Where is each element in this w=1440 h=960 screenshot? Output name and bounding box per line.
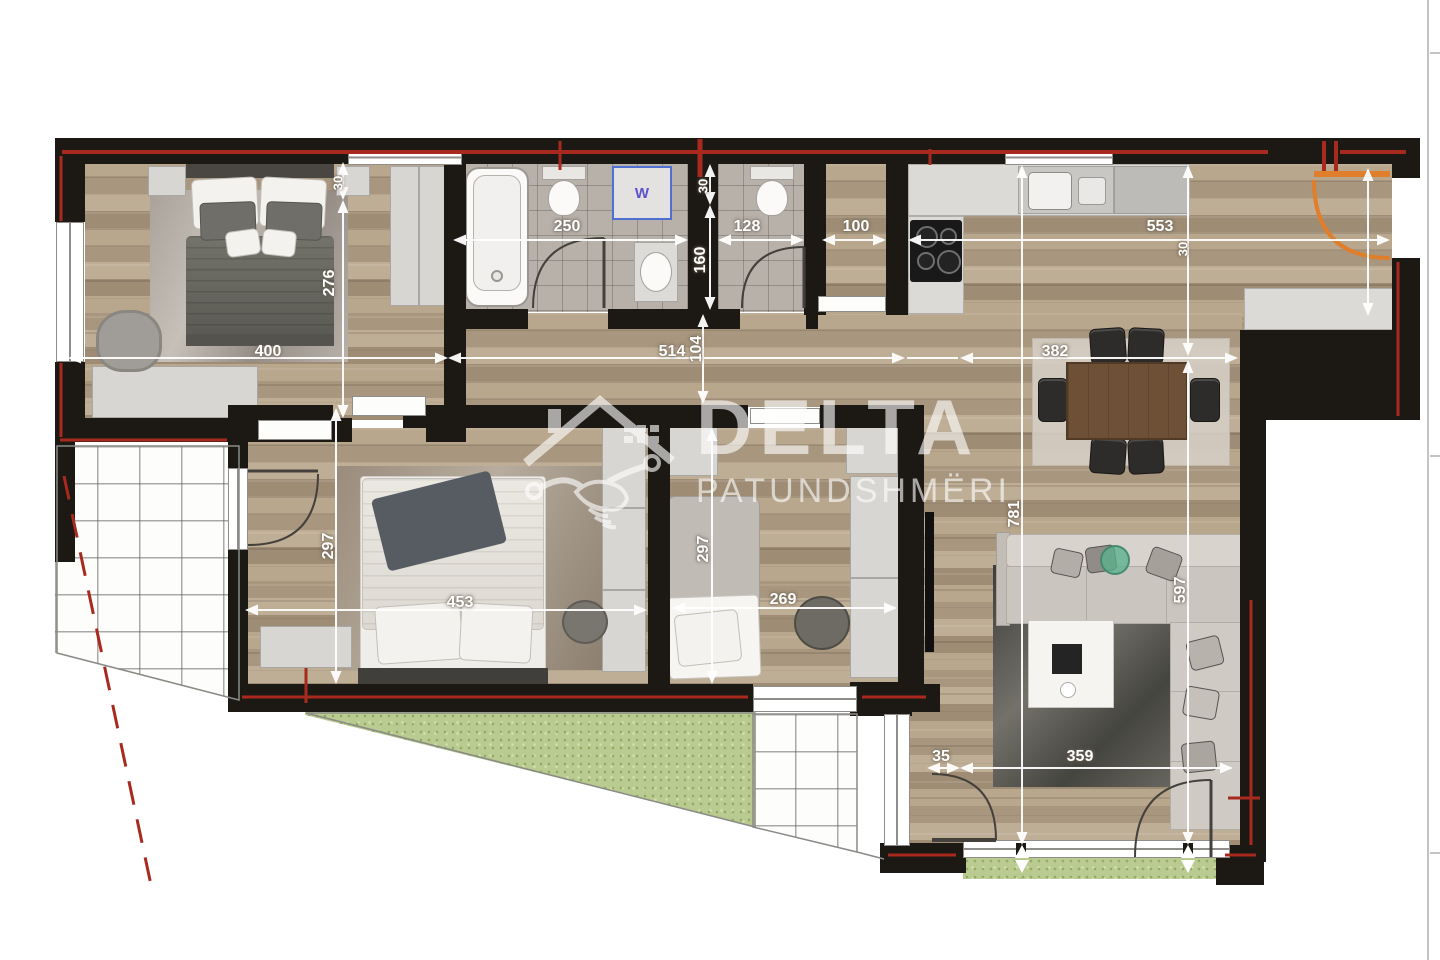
window xyxy=(1005,150,1113,165)
wall xyxy=(1240,420,1266,862)
dim-label-living-height: 781 xyxy=(1006,501,1024,528)
door-leaf xyxy=(818,296,886,312)
wall xyxy=(55,442,75,562)
tv-wall-unit xyxy=(925,512,934,652)
dim-label-terrace-door-offset: 35 xyxy=(932,748,950,766)
cooktop-burner xyxy=(937,250,961,274)
floor-hallway xyxy=(818,164,888,314)
dim-label-kitchen-width: 553 xyxy=(1147,218,1174,236)
dim-label-bath-wall-offset: 30 xyxy=(696,179,711,193)
wall xyxy=(850,682,912,716)
dim-label-bedroom3-width: 269 xyxy=(770,591,797,609)
toilet-bowl xyxy=(548,180,580,216)
garden-grass-triangle xyxy=(305,712,755,828)
bed-cushion xyxy=(261,228,298,257)
wall xyxy=(886,160,908,315)
dim-label-bedroom1-width: 400 xyxy=(255,343,282,361)
desk-chair xyxy=(794,596,850,650)
bench xyxy=(260,626,352,668)
dining-chair xyxy=(1038,378,1068,422)
floor-plan: W xyxy=(0,0,1440,960)
toilet-tank xyxy=(542,166,586,180)
dining-chair xyxy=(1127,327,1165,365)
wall xyxy=(403,405,748,428)
wall xyxy=(228,550,248,686)
wall xyxy=(820,405,924,428)
sheet-tick xyxy=(1430,455,1440,457)
sheet-tick xyxy=(1430,852,1440,854)
nightstand xyxy=(148,166,186,196)
dim-label-bedroom2-width: 453 xyxy=(447,594,474,612)
desk xyxy=(850,476,900,678)
sheet-border-line xyxy=(1427,0,1429,960)
window xyxy=(56,222,84,362)
dining-chair xyxy=(1127,437,1165,475)
wall xyxy=(806,309,818,329)
wall xyxy=(228,428,248,468)
wall xyxy=(608,309,740,329)
bed-pillow xyxy=(673,609,742,667)
dim-label-kitchen-offset: 30 xyxy=(1176,242,1191,256)
terrace-paving-left xyxy=(55,446,239,714)
sheet-tick xyxy=(1430,52,1440,54)
glass-door-mullion xyxy=(1183,843,1193,855)
wall xyxy=(448,309,528,329)
pouf xyxy=(562,600,608,644)
terrace-paving-small xyxy=(753,714,857,854)
coffee-table-tray xyxy=(1052,644,1082,674)
dim-label-bedroom2-height: 297 xyxy=(320,533,338,560)
window xyxy=(348,150,462,165)
dresser xyxy=(666,424,718,476)
dining-chair xyxy=(1089,327,1127,365)
wall xyxy=(228,684,753,712)
entrance-door-opening xyxy=(1392,178,1420,258)
armchair xyxy=(96,310,162,372)
bed-footboard xyxy=(358,668,548,684)
wall xyxy=(804,160,826,315)
dim-label-bath2-depth: 160 xyxy=(692,247,710,274)
kitchen-appliance-block xyxy=(1114,166,1188,214)
dim-label-corridor-length: 514 xyxy=(659,343,686,361)
wardrobe xyxy=(602,424,646,672)
dim-label-hall-width: 100 xyxy=(843,218,870,236)
bathtub-drain xyxy=(491,270,503,282)
side-table-round xyxy=(1100,545,1130,575)
dim-label-living-inner-height: 597 xyxy=(1172,577,1190,604)
door-leaf xyxy=(258,420,332,440)
cooktop-burner xyxy=(917,252,935,270)
dim-label-bedroom3-height: 297 xyxy=(695,536,713,563)
kitchen-drainboard xyxy=(1078,177,1106,205)
sink-basin xyxy=(640,252,672,292)
bed-cushion xyxy=(224,228,261,258)
sofa-pillow xyxy=(1182,685,1221,720)
washing-machine-label: W xyxy=(635,185,649,202)
dim-label-bedroom1-offset: 30 xyxy=(331,176,346,190)
dim-label-corridor-width: 104 xyxy=(688,336,706,363)
wall xyxy=(880,843,966,873)
bed-headboard xyxy=(186,164,334,178)
cooktop-burner xyxy=(940,228,957,245)
wall xyxy=(55,138,1420,164)
sofa-pillow xyxy=(1181,740,1218,773)
glass-door-mullion xyxy=(1016,843,1026,855)
wall xyxy=(1240,330,1420,420)
dim-label-dining-width: 382 xyxy=(1042,343,1069,361)
dim-label-bath1-width: 250 xyxy=(554,218,581,236)
kitchen-sink-basin xyxy=(1028,172,1072,210)
dim-label-bath2-width: 128 xyxy=(734,218,761,236)
window xyxy=(884,714,910,846)
dim-label-living-bottom-width: 359 xyxy=(1067,748,1094,766)
garden-grass-strip xyxy=(963,857,1231,879)
washing-machine: W xyxy=(612,166,672,220)
dim-label-bedroom1-height: 276 xyxy=(321,270,339,297)
coffee-table-bowl xyxy=(1060,682,1076,698)
wall xyxy=(444,160,466,418)
wardrobe xyxy=(390,166,448,306)
dresser xyxy=(846,424,898,474)
dining-table xyxy=(1066,362,1188,440)
dining-chair xyxy=(1190,378,1220,422)
wall xyxy=(898,428,924,690)
sofa-seats xyxy=(1006,566,1246,624)
glass-door xyxy=(753,686,857,712)
toilet-tank xyxy=(750,166,794,180)
dining-chair xyxy=(1089,437,1127,475)
cooktop-burner xyxy=(916,226,938,248)
wall xyxy=(55,164,85,222)
entrance-sideboard xyxy=(1244,288,1404,330)
wall xyxy=(648,428,670,686)
door-leaf xyxy=(750,408,820,424)
door-leaf xyxy=(352,396,426,416)
terrace-door-glass xyxy=(228,468,248,550)
toilet-bowl xyxy=(756,180,788,216)
